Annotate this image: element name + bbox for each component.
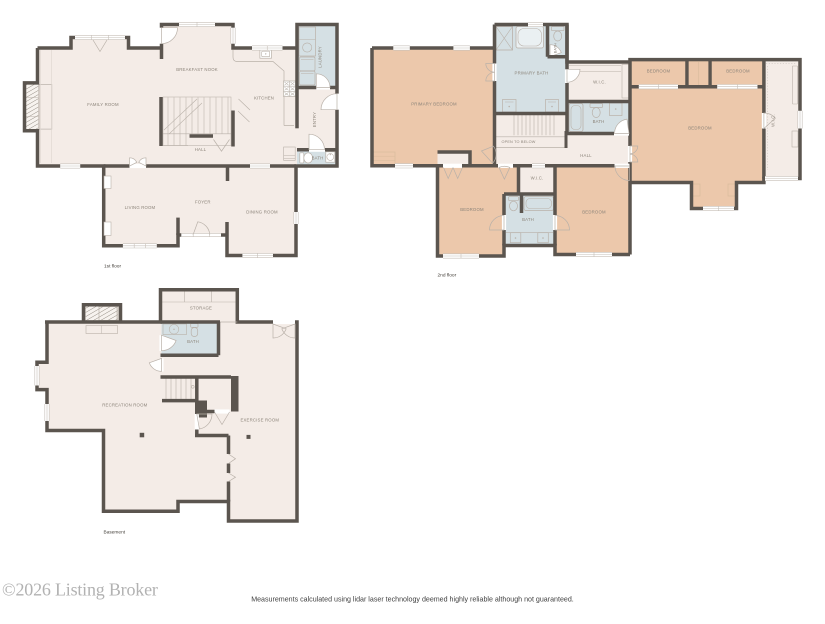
svg-text:KITCHEN: KITCHEN — [254, 96, 274, 101]
svg-text:BEDROOM: BEDROOM — [726, 69, 750, 74]
svg-text:BEDROOM: BEDROOM — [582, 210, 606, 215]
svg-text:EXERCISE ROOM: EXERCISE ROOM — [240, 417, 279, 422]
svg-text:BATH: BATH — [593, 119, 605, 124]
svg-text:BEDROOM: BEDROOM — [688, 126, 712, 131]
svg-text:W.I.C.: W.I.C. — [593, 80, 606, 85]
svg-text:Basement: Basement — [104, 530, 126, 536]
svg-text:ENTRY: ENTRY — [312, 112, 317, 127]
svg-text:BREAKFAST NOOK: BREAKFAST NOOK — [176, 67, 218, 72]
svg-text:©2026 Listing Broker: ©2026 Listing Broker — [2, 580, 158, 600]
svg-text:W.I.C.: W.I.C. — [531, 176, 544, 181]
svg-text:HALL: HALL — [195, 147, 207, 152]
svg-text:DINING ROOM: DINING ROOM — [246, 210, 278, 215]
svg-text:LIVING ROOM: LIVING ROOM — [125, 205, 156, 210]
svg-text:BEDROOM: BEDROOM — [647, 69, 671, 74]
svg-text:Measurements calculated using: Measurements calculated using lidar lase… — [251, 596, 574, 604]
svg-text:HALL: HALL — [580, 153, 592, 158]
svg-text:OPEN TO BELOW: OPEN TO BELOW — [501, 140, 535, 144]
svg-text:LAUNDRY: LAUNDRY — [318, 46, 323, 68]
svg-text:BATH: BATH — [522, 217, 534, 222]
svg-text:PRIMARY BATH: PRIMARY BATH — [515, 71, 549, 76]
svg-text:1st floor: 1st floor — [104, 264, 121, 270]
svg-text:STORAGE: STORAGE — [190, 306, 212, 311]
svg-text:RECREATION ROOM: RECREATION ROOM — [102, 402, 147, 407]
svg-text:BATH: BATH — [312, 155, 324, 160]
svg-text:2nd floor: 2nd floor — [438, 273, 457, 279]
svg-text:FAMILY ROOM: FAMILY ROOM — [87, 102, 119, 107]
svg-text:BATH: BATH — [554, 43, 558, 54]
svg-text:BATH: BATH — [187, 339, 199, 344]
svg-text:PRIMARY BEDROOM: PRIMARY BEDROOM — [411, 102, 457, 107]
svg-text:BEDROOM: BEDROOM — [460, 207, 484, 212]
svg-text:W.I.C.: W.I.C. — [771, 114, 776, 127]
svg-text:FOYER: FOYER — [195, 200, 211, 205]
